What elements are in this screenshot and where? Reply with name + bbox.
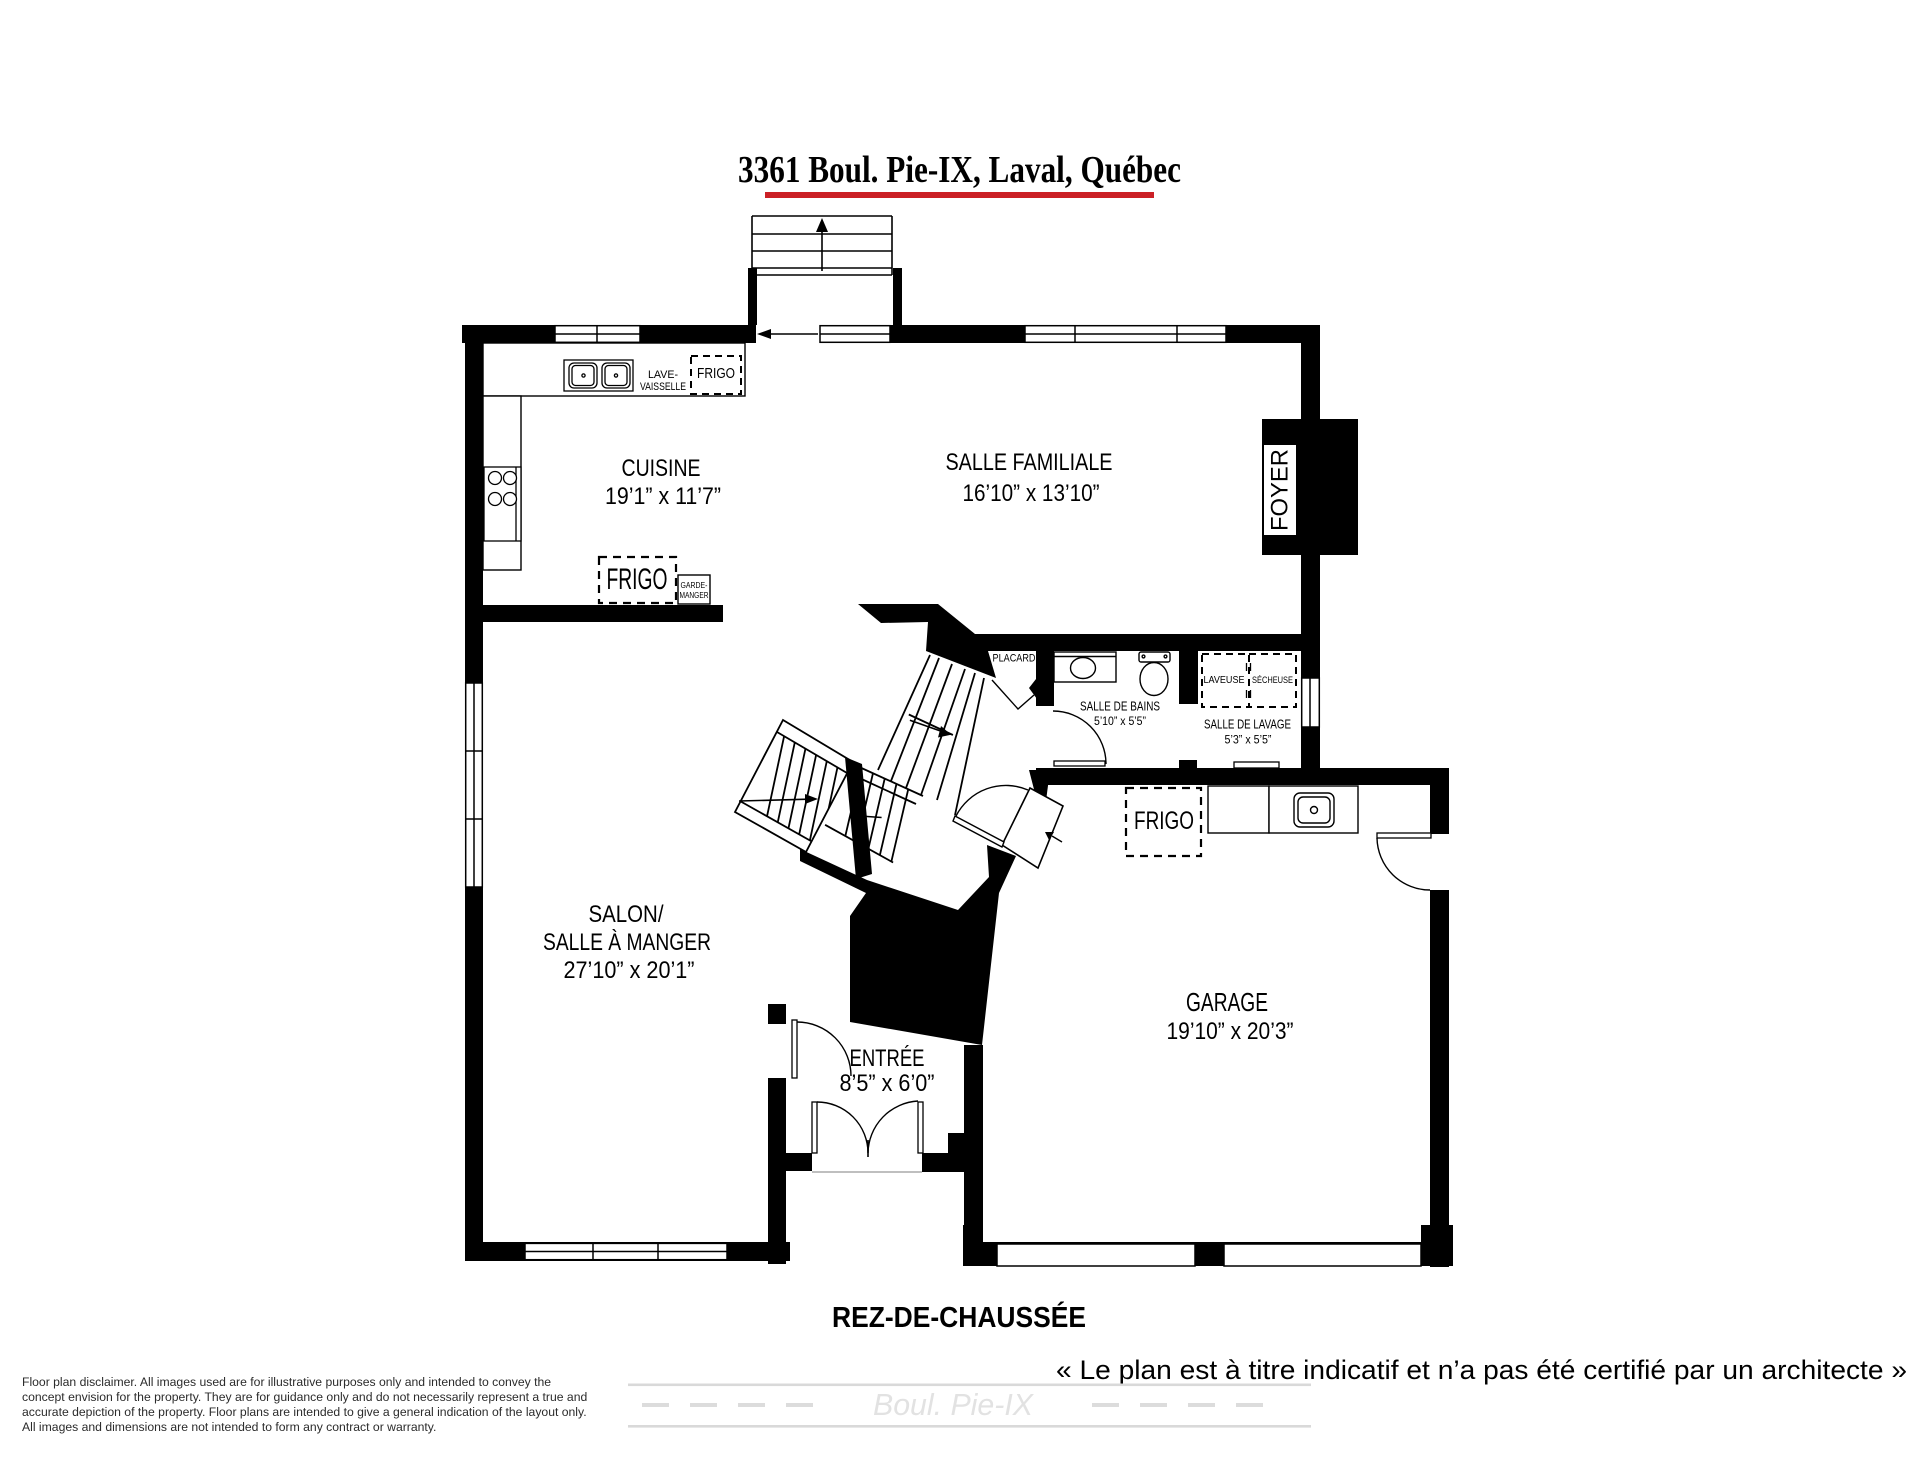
svg-text:Boul. Pie-IX: Boul. Pie-IX — [873, 1387, 1034, 1422]
svg-text:PLACARD: PLACARD — [993, 653, 1036, 665]
svg-text:concept envision for the prope: concept envision for the property. They … — [22, 1390, 587, 1404]
svg-text:GARAGE: GARAGE — [1186, 987, 1268, 1017]
svg-text:SALLE DE LAVAGE: SALLE DE LAVAGE — [1204, 718, 1291, 732]
svg-text:GARDE-: GARDE- — [681, 580, 708, 590]
svg-text:19’1” x 11’7”: 19’1” x 11’7” — [605, 483, 721, 510]
svg-text:27’10” x 20’1”: 27’10” x 20’1” — [564, 957, 695, 984]
svg-text:SALLE DE BAINS: SALLE DE BAINS — [1080, 700, 1160, 714]
svg-text:5’10” x 5’5”: 5’10” x 5’5” — [1094, 714, 1146, 728]
svg-text:Floor plan disclaimer. All ima: Floor plan disclaimer. All images used a… — [22, 1375, 551, 1389]
svg-text:ENTRÉE: ENTRÉE — [850, 1045, 925, 1072]
svg-text:FRIGO: FRIGO — [1134, 807, 1194, 835]
svg-text:LAVEUSE: LAVEUSE — [1204, 675, 1245, 686]
svg-text:LAVE-: LAVE- — [648, 369, 678, 381]
svg-text:FRIGO: FRIGO — [607, 563, 668, 596]
svg-text:SÉCHEUSE: SÉCHEUSE — [1252, 675, 1293, 685]
svg-text:« Le plan est à titre indicati: « Le plan est à titre indicatif et n’a p… — [1056, 1355, 1907, 1385]
svg-text:SALLE FAMILIALE: SALLE FAMILIALE — [946, 449, 1113, 476]
svg-text:3361 Boul. Pie-IX, Laval, Québ: 3361 Boul. Pie-IX, Laval, Québec — [738, 149, 1181, 191]
svg-text:8’5” x 6’0”: 8’5” x 6’0” — [840, 1070, 935, 1097]
svg-text:FOYER: FOYER — [1267, 449, 1294, 531]
svg-text:accurate depiction of the prop: accurate depiction of the property. Floo… — [22, 1405, 587, 1419]
svg-text:5’3” x 5’5”: 5’3” x 5’5” — [1225, 733, 1272, 747]
svg-text:REZ-DE-CHAUSSÉE: REZ-DE-CHAUSSÉE — [832, 1300, 1086, 1334]
svg-text:VAISSELLE: VAISSELLE — [640, 381, 686, 393]
svg-text:16’10” x 13’10”: 16’10” x 13’10” — [963, 480, 1100, 507]
svg-text:CUISINE: CUISINE — [622, 455, 701, 482]
svg-text:All images and dimensions are: All images and dimensions are not intend… — [22, 1420, 436, 1434]
svg-text:FRIGO: FRIGO — [697, 365, 735, 382]
svg-text:SALON/: SALON/ — [589, 901, 664, 928]
svg-text:MANGER: MANGER — [680, 590, 709, 600]
svg-text:19’10” x 20’3”: 19’10” x 20’3” — [1167, 1018, 1294, 1045]
svg-text:SALLE À MANGER: SALLE À MANGER — [543, 929, 711, 956]
